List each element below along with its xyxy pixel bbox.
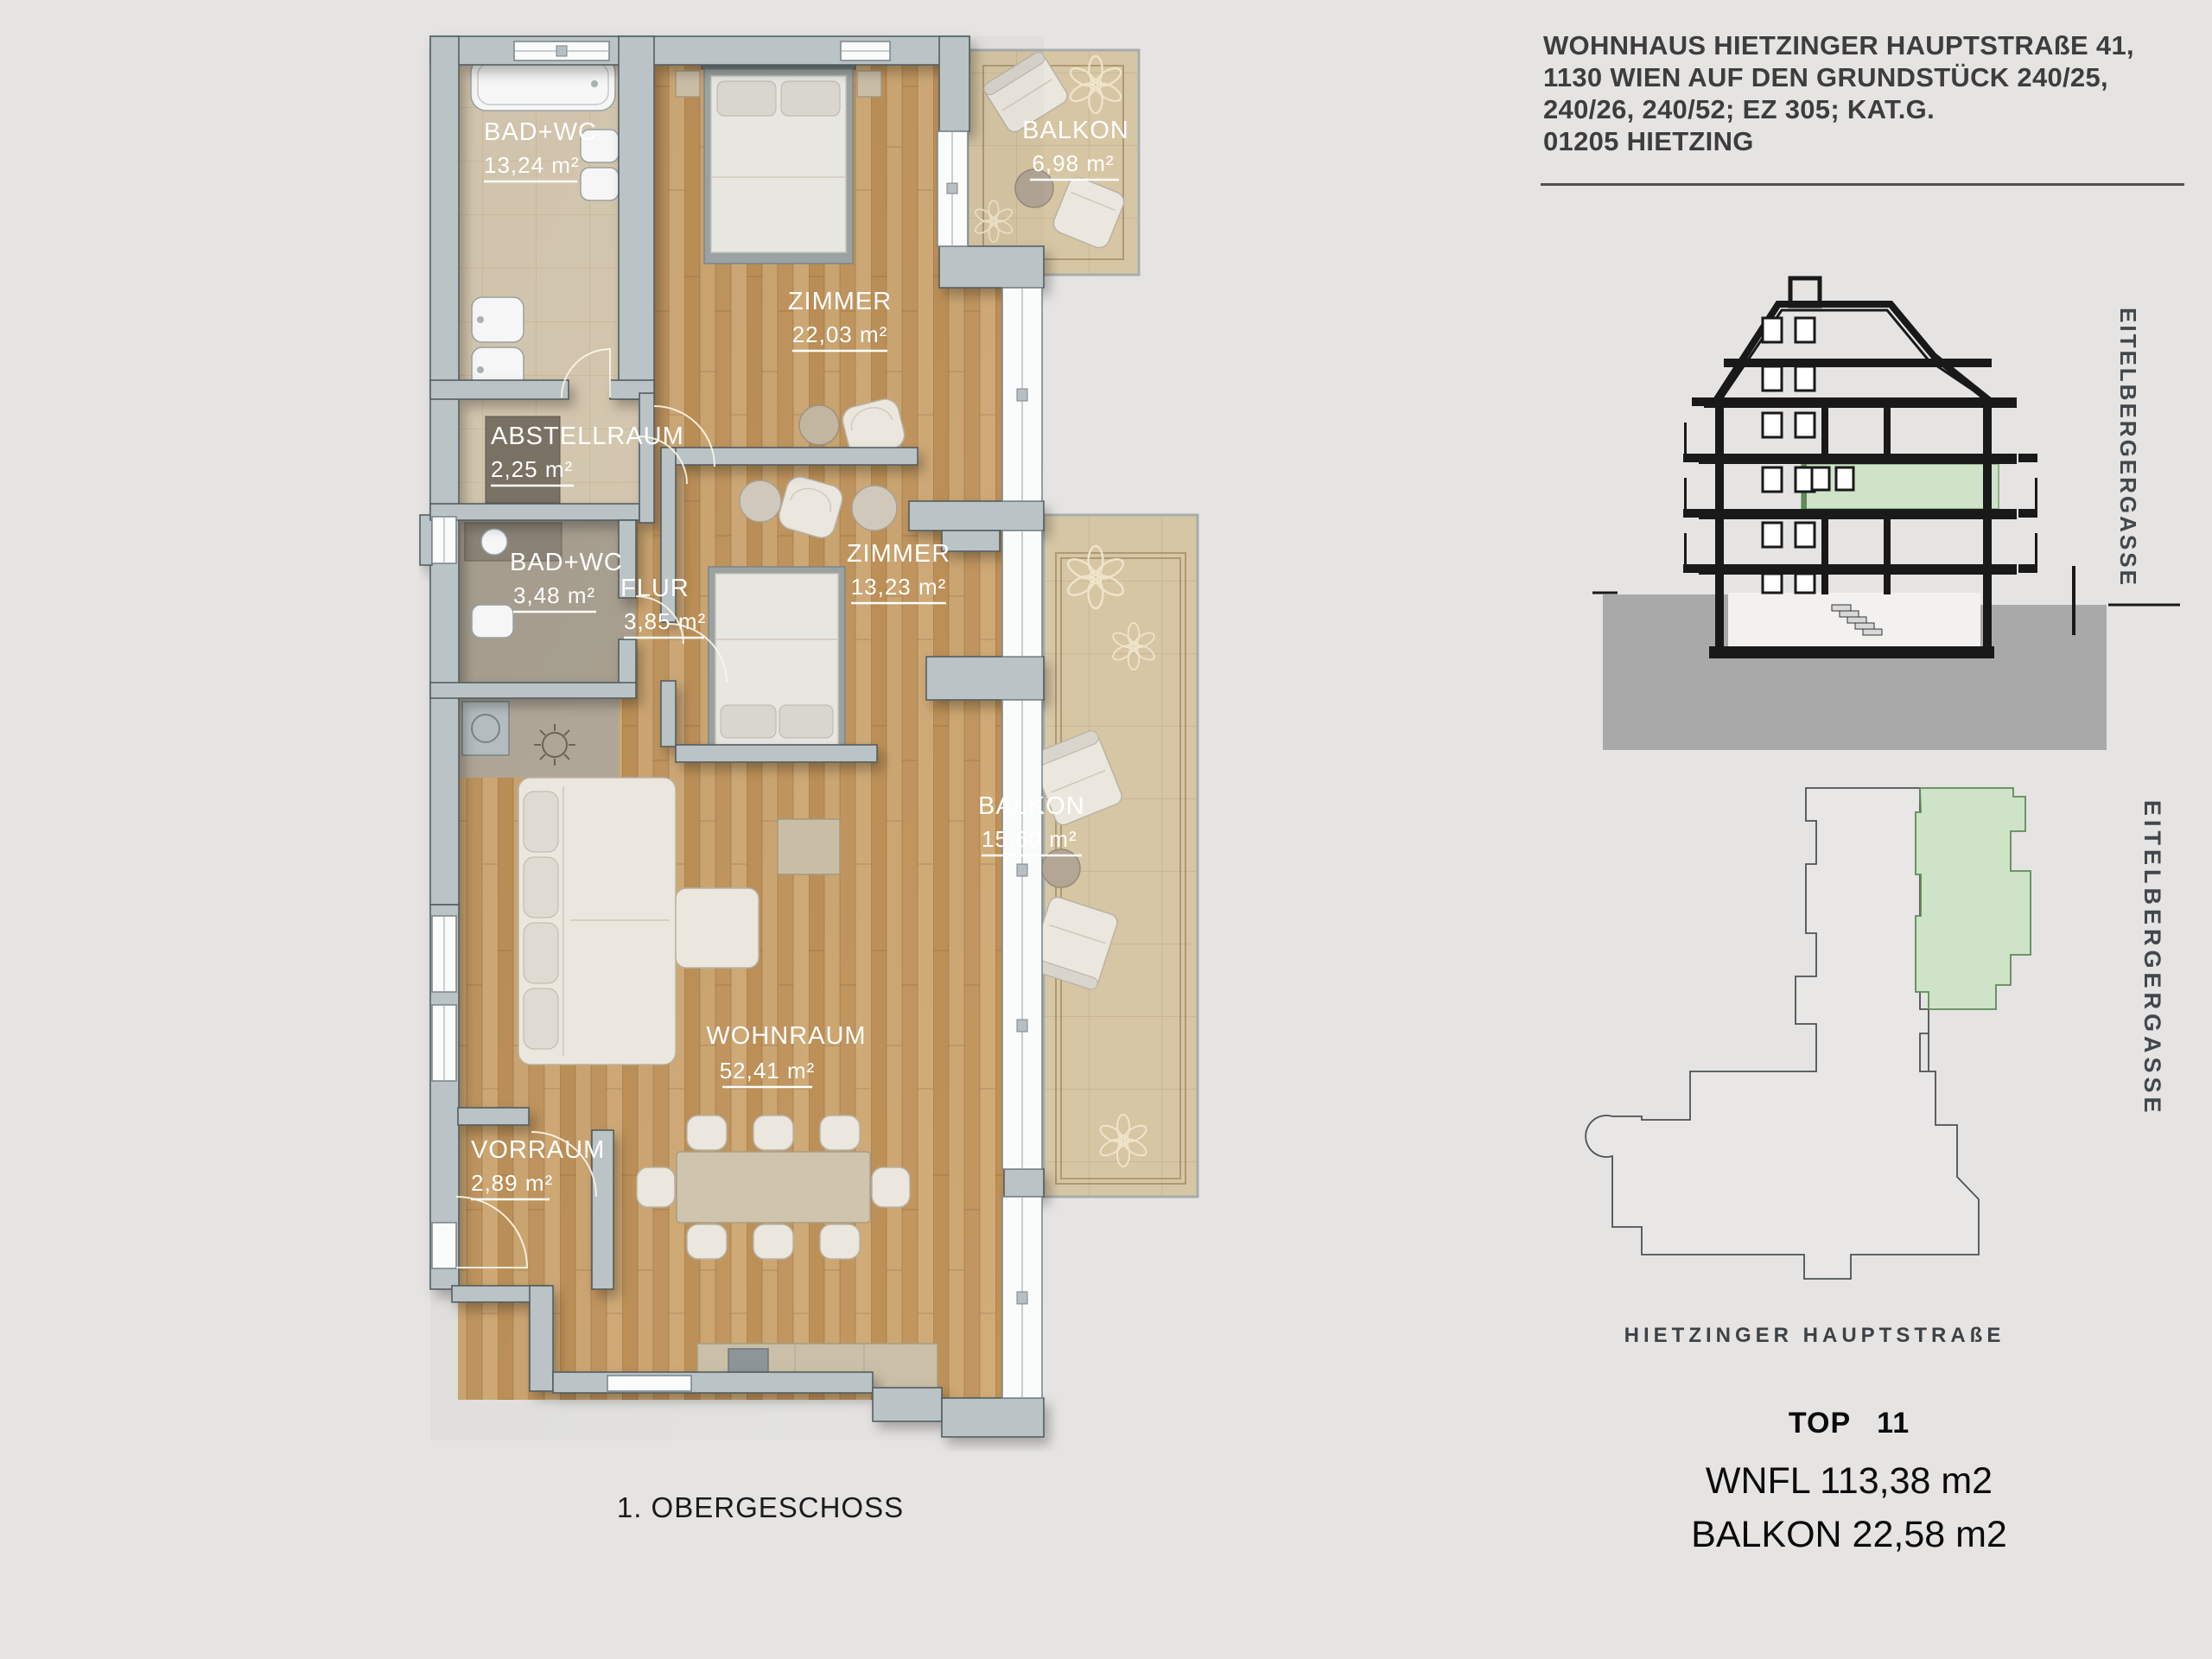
header-line: WOHNHAUS HIETZINGER HAUPTSTRAßE 41,: [1543, 29, 2209, 61]
floor-plan: BAD+WC 13,24 m² ZIMMER 22,03 m² BALKON 6…: [419, 9, 1214, 1452]
pouf-icon: [852, 486, 897, 531]
balkon-line: BALKON 22,58 m2: [1642, 1508, 2056, 1561]
wnfl-line: WNFL 113,38 m2: [1642, 1454, 2056, 1508]
washer-icon: [462, 702, 509, 755]
svg-text:22,03 m²: 22,03 m²: [792, 321, 888, 347]
svg-text:13,23 m²: 13,23 m²: [851, 574, 947, 600]
side-table-icon: [778, 819, 840, 874]
street-sign-pole: [2072, 566, 2075, 635]
project-header: WOHNHAUS HIETZINGER HAUPTSTRAßE 41, 1130…: [1543, 29, 2209, 157]
svg-text:FLUR: FLUR: [620, 575, 690, 602]
roof: [1713, 278, 1994, 404]
ground: [1592, 593, 2180, 750]
svg-text:13,24 m²: 13,24 m²: [484, 152, 580, 178]
site-plan: [1573, 773, 2177, 1309]
header-line: 240/26, 240/52; EZ 305; KAT.G.: [1543, 93, 2209, 125]
svg-text:ZIMMER: ZIMMER: [788, 288, 892, 315]
floor-caption: 1. OBERGESCHOSS: [553, 1491, 968, 1524]
svg-text:6,98 m²: 6,98 m²: [1032, 150, 1114, 176]
svg-text:2,89 m²: 2,89 m²: [471, 1170, 553, 1196]
bed-icon: [676, 48, 881, 264]
section-balconies-right: [2018, 454, 2037, 573]
side-table-icon: [799, 405, 839, 445]
header-line: 01205 HIETZING: [1543, 125, 2209, 157]
unit-number: 11: [1877, 1407, 1910, 1440]
street-label-eitelbergergasse-section: EITELBERGERGASSE: [2114, 308, 2141, 588]
dining-table-icon: [677, 1152, 870, 1223]
svg-text:BALKON: BALKON: [978, 792, 1085, 820]
svg-text:52,41 m²: 52,41 m²: [720, 1058, 816, 1084]
svg-text:VORRAUM: VORRAUM: [471, 1136, 605, 1164]
svg-text:BALKON: BALKON: [1022, 117, 1129, 144]
unit-title: TOP11: [1642, 1407, 2056, 1440]
header-line: 1130 WIEN AUF DEN GRUNDSTÜCK 240/25,: [1543, 61, 2209, 93]
nightstand-icon: [676, 71, 700, 97]
svg-text:BAD+WC: BAD+WC: [510, 549, 623, 576]
svg-text:3,48 m²: 3,48 m²: [513, 582, 595, 608]
building-section: [1592, 259, 2180, 765]
svg-text:BAD+WC: BAD+WC: [484, 118, 597, 146]
entrance-door-opening: [432, 1223, 456, 1268]
bidet-icon: [581, 168, 619, 200]
page: { "page": {"background": "#e5e4e2", "hig…: [0, 0, 2212, 1659]
window-icon: [938, 131, 968, 246]
svg-text:WOHNRAUM: WOHNRAUM: [706, 1022, 866, 1050]
highlighted-unit-section: [1802, 464, 1999, 509]
highlighted-unit-site: [1916, 788, 2031, 1009]
header-divider: [1541, 183, 2184, 186]
street-label-hietzinger: HIETZINGER HAUPTSTRAßE: [1590, 1324, 2039, 1348]
toilet-icon: [472, 605, 513, 638]
svg-text:3,85 m²: 3,85 m²: [624, 608, 706, 634]
street-label-eitelbergergasse-site: EITELBERGERGASSE: [2139, 800, 2165, 1117]
nightstand-icon: [857, 71, 881, 97]
svg-text:2,25 m²: 2,25 m²: [491, 456, 573, 482]
svg-text:ABSTELLRAUM: ABSTELLRAUM: [491, 423, 684, 450]
window-icon: [607, 1376, 691, 1391]
bed-icon: [709, 567, 845, 752]
svg-text:15,60 m²: 15,60 m²: [982, 826, 1077, 852]
pouf-icon: [740, 480, 781, 522]
unit-summary: TOP11 WNFL 113,38 m2 BALKON 22,58 m2: [1642, 1407, 2056, 1561]
svg-text:ZIMMER: ZIMMER: [847, 540, 950, 568]
unit-label: TOP: [1789, 1407, 1851, 1440]
section-balconies-left: [1683, 397, 1706, 573]
